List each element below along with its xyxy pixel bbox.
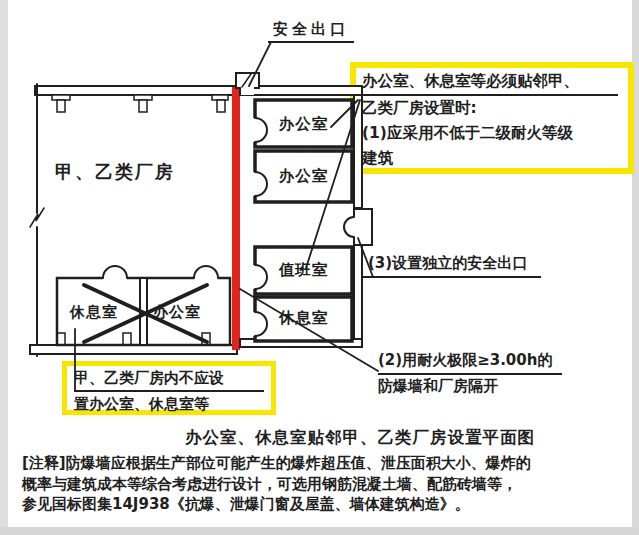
factory-label: 甲、乙类厂房: [55, 160, 175, 184]
prohibition-callout-text: 甲、乙类厂房内不应设 置办公室、休息室等: [74, 366, 264, 416]
door-arc: [344, 217, 354, 237]
firewall-line-2: 防爆墙和厂房隔开: [378, 375, 562, 398]
room-label-duty-room: 值班室: [255, 260, 352, 281]
prohibition-line-2: 置办公室、休息室等: [74, 392, 264, 416]
leader-lines: [75, 42, 378, 390]
figure-notes: [注释]防爆墙应根据生产部位可能产生的爆炸超压值、泄压面积大小、爆炸的 概率与建…: [22, 453, 628, 515]
adjacency-callout-text: 办公室、休息室等必须贴邻甲、 乙类厂房设置时: (1)应采用不低于二级耐火等级 …: [362, 69, 618, 171]
wall-break-symbol: [30, 208, 44, 227]
prohibition-line-1: 甲、乙类厂房内不应设: [74, 366, 264, 392]
bottom-edge-shade: [0, 527, 639, 535]
room-label-rest-room: 休息室: [255, 308, 352, 329]
room-label-office-1: 办公室: [255, 114, 352, 135]
top-safety-exit: [236, 73, 259, 95]
firewall-callout: (2)用耐火极限≥3.00h的 防爆墙和厂房隔开: [378, 349, 562, 398]
note-line-1: [注释]防爆墙应根据生产部位可能产生的爆炸超压值、泄压面积大小、爆炸的: [22, 453, 628, 474]
leader-firewall: [240, 289, 378, 371]
room-label-office-2: 办公室: [255, 166, 352, 187]
safety-exit-label: 安全出口: [268, 20, 354, 43]
note-line-2: 概率与建筑成本等综合考虑进行设计，可选用钢筋混凝土墙、配筋砖墙等，: [22, 474, 628, 495]
adjacency-line-1: 办公室、休息室等必须贴邻甲、: [362, 69, 618, 96]
door-arc: [103, 266, 127, 278]
independent-exit-callout: (3)设置独立的安全出口: [362, 254, 541, 278]
note-line-3: 参见国标图集14J938《抗爆、泄爆门窗及屋盖、墙体建筑构造》。: [22, 494, 628, 515]
leader-safety-exit: [249, 42, 271, 86]
crossed-room-label-office: 办公室: [153, 303, 201, 322]
annex-rooms: [252, 100, 352, 341]
adjacency-line-3: (1)应采用不低于二级耐火等级: [362, 121, 618, 146]
adjacency-line-2: 乙类厂房设置时:: [362, 96, 618, 121]
figure-caption: 办公室、休息室贴邻甲、乙类厂房设置平面图: [120, 427, 600, 449]
independent-exit-vestibule: [344, 209, 372, 245]
blast-wall: [232, 87, 240, 350]
crossed-room-label-rest-room: 休息室: [70, 303, 118, 322]
left-edge-shade: [0, 0, 8, 535]
adjacency-line-4: 建筑: [362, 146, 618, 171]
floor-plan-figure: 安全出口 甲、乙类厂房 办公室 办公室 值班室 休息室 休息室 办公室 办公室、…: [0, 0, 639, 535]
factory-walls: [30, 84, 237, 356]
door-arc: [194, 266, 218, 278]
firewall-line-1: (2)用耐火极限≥3.00h的: [378, 349, 562, 375]
